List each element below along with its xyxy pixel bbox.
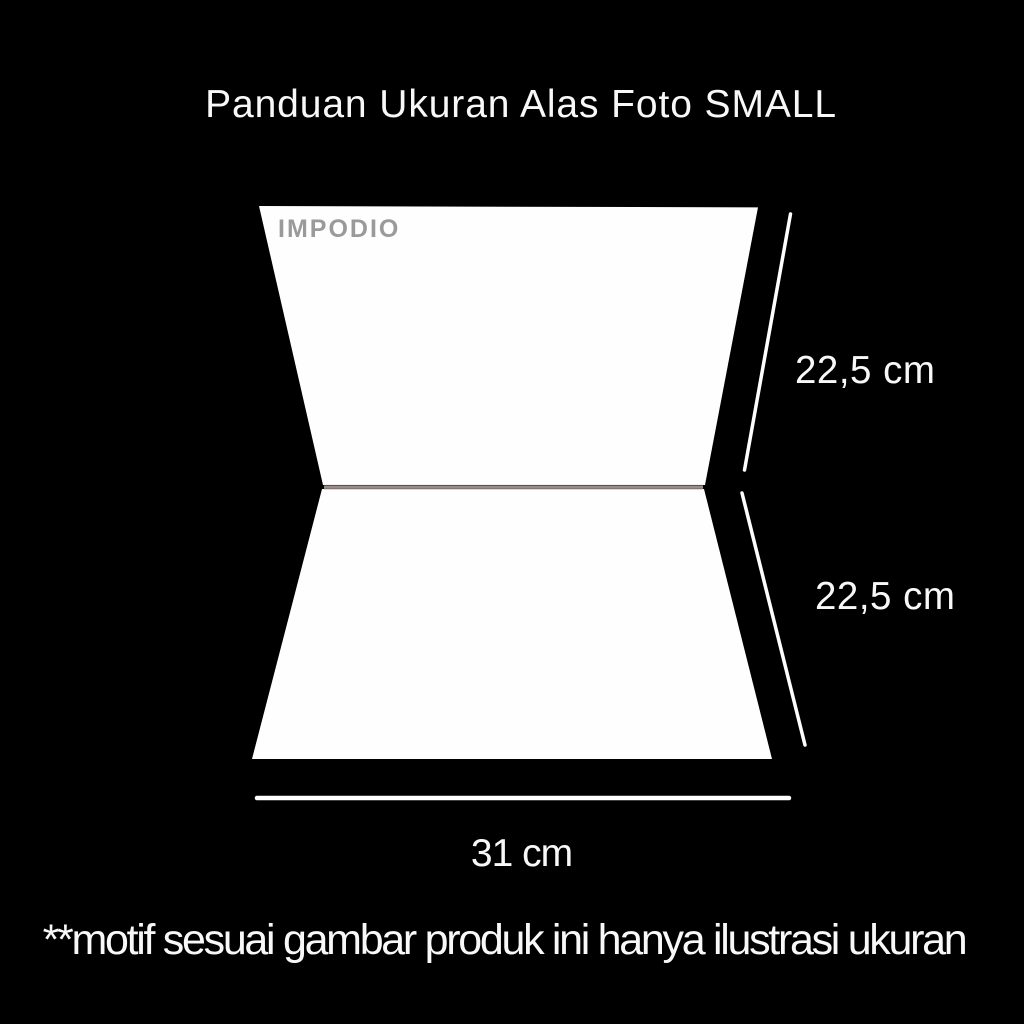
svg-text:IMPODIO: IMPODIO [278,215,400,243]
svg-text:Panduan Ukuran Alas Foto SMALL: Panduan Ukuran Alas Foto SMALL [205,83,837,126]
svg-text:22,5 cm: 22,5 cm [815,575,955,618]
svg-text:22,5 cm: 22,5 cm [795,349,935,392]
svg-text:31 cm: 31 cm [471,832,572,875]
svg-text:**motif sesuai gambar produk i: **motif sesuai gambar produk ini hanya i… [43,916,966,964]
